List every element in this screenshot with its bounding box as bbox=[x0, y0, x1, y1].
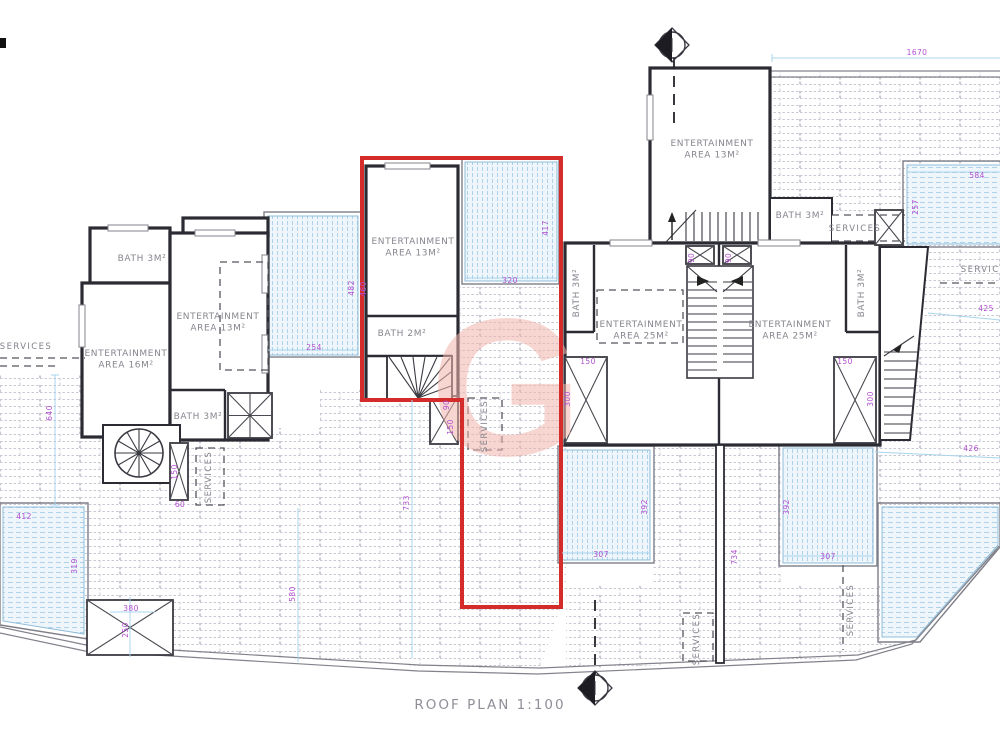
dimension-label: 417 bbox=[541, 220, 550, 236]
room-label: BATH 3M² bbox=[776, 211, 825, 221]
dimension-label: 580 bbox=[288, 586, 297, 602]
dimension-label: 90 bbox=[442, 400, 451, 410]
services-label: SERVICES bbox=[961, 265, 1000, 275]
services-label: SERVICES bbox=[692, 613, 702, 665]
double-stair-central bbox=[687, 266, 753, 378]
pool-bottom-right bbox=[878, 503, 1000, 642]
dimension-label: 150 bbox=[837, 357, 853, 366]
room-label: BATH 3M² bbox=[572, 269, 582, 318]
dimension-label: 307 bbox=[593, 550, 609, 559]
room-label: BATH 3M² bbox=[118, 254, 167, 264]
dimension-label: 426 bbox=[963, 444, 979, 453]
room-label: BATH 3M² bbox=[174, 412, 223, 422]
services-label: SERVICES bbox=[0, 342, 52, 352]
dimension-label: 307 bbox=[820, 552, 836, 561]
dimension-label: 90 bbox=[724, 253, 733, 263]
dimension-label: 584 bbox=[969, 171, 985, 180]
services-label: SERVICES bbox=[846, 584, 856, 636]
plan-title: ROOF PLAN 1:100 bbox=[414, 697, 565, 713]
pool-below-right-unit bbox=[779, 444, 877, 566]
window-icon bbox=[262, 255, 268, 293]
window-icon bbox=[108, 225, 148, 231]
dimension-label: 320 bbox=[502, 276, 518, 285]
section-marker-bottom bbox=[578, 671, 612, 705]
dimension-label: 150 bbox=[170, 464, 179, 480]
services-label: SERVICES bbox=[204, 451, 214, 503]
section-marker-top bbox=[655, 28, 689, 62]
room-label: BATH 2M² bbox=[378, 329, 427, 339]
dimension-label: 300 bbox=[563, 391, 572, 407]
dimension-label: 60 bbox=[175, 500, 185, 509]
dimension-label: 734 bbox=[730, 549, 739, 565]
wall-terrace-divider bbox=[716, 445, 724, 663]
dimension-label: 250 bbox=[121, 622, 130, 638]
dimension-label: 150 bbox=[446, 419, 455, 435]
dimension-label: 257 bbox=[911, 199, 920, 215]
dimension-label: 319 bbox=[70, 558, 79, 574]
dimension-label: 482 bbox=[347, 280, 356, 296]
window-icon bbox=[758, 240, 800, 246]
window-icon bbox=[647, 95, 653, 140]
spiral-stair bbox=[115, 429, 163, 477]
dashed-services-lines-left-edge bbox=[0, 358, 85, 366]
edge-tick bbox=[0, 38, 6, 48]
dimension-label: 150 bbox=[580, 357, 596, 366]
window-icon bbox=[610, 240, 652, 246]
window-icon bbox=[79, 305, 85, 347]
dimension-label: 380 bbox=[123, 604, 139, 613]
window-icon bbox=[262, 335, 268, 373]
window-icon bbox=[195, 230, 235, 236]
dimension-label: 392 bbox=[640, 499, 649, 515]
dimension-label: 733 bbox=[402, 495, 411, 511]
dimension-label: 254 bbox=[306, 343, 322, 352]
dimension-label: 460 bbox=[359, 281, 368, 297]
dimension-label: 425 bbox=[978, 304, 994, 313]
dimension-label: 300 bbox=[866, 391, 875, 407]
room-label: BATH 3M² bbox=[857, 269, 867, 318]
dimension-label: 392 bbox=[782, 499, 791, 515]
dimension-label: 1670 bbox=[907, 48, 928, 57]
shaft-stair-left-cluster bbox=[228, 393, 272, 438]
services-label: SERVICES bbox=[480, 400, 490, 452]
roof-plan-drawing: G ENTERTAINMENTAREA 16M²ENTERTAINMENTARE… bbox=[0, 0, 1000, 750]
window-icon bbox=[385, 163, 430, 169]
services-label: SERVICES bbox=[829, 224, 881, 234]
dimension-label: 640 bbox=[45, 405, 54, 421]
dimension-label: 90 bbox=[687, 253, 696, 263]
dimension-label: 412 bbox=[16, 512, 32, 521]
